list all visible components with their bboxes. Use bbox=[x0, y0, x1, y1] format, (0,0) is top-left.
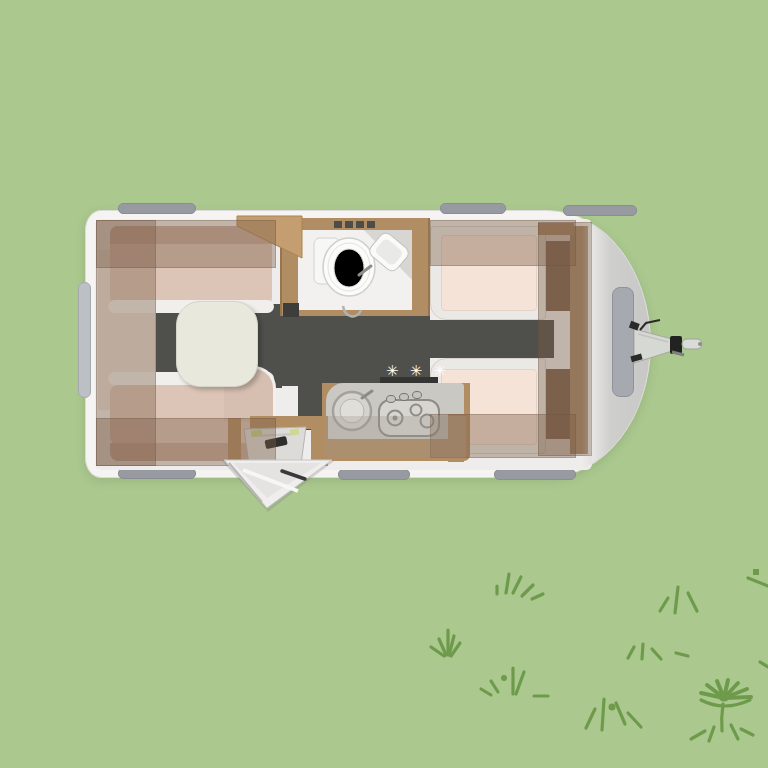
hob-burner-marker: ✳ ✳ ✳ bbox=[386, 362, 449, 380]
grass-dash bbox=[676, 653, 688, 656]
grass-dash bbox=[748, 569, 768, 586]
kitchen-front-ghost bbox=[326, 416, 466, 458]
grass-tuft bbox=[660, 587, 697, 613]
window-tab-top-1 bbox=[118, 203, 196, 214]
grass-tuft bbox=[431, 630, 460, 656]
grass-dash bbox=[760, 662, 768, 667]
grass-tuft bbox=[628, 644, 661, 659]
dinette-table bbox=[176, 301, 258, 387]
overhead-locker-dinette-bottom bbox=[96, 418, 276, 466]
caravan-floor-plan-scene: ✳ ✳ ✳ bbox=[0, 0, 768, 768]
window-tab-top-2 bbox=[440, 203, 506, 214]
grass-tuft bbox=[481, 668, 548, 696]
rear-window-tab bbox=[78, 282, 91, 398]
front-curve-shading bbox=[545, 211, 650, 477]
window-tab-bottom-2 bbox=[338, 469, 410, 480]
daisy-flower bbox=[691, 680, 753, 741]
floor-between-beds bbox=[430, 320, 554, 358]
gas-locker-lid bbox=[612, 287, 634, 397]
grass-tuft bbox=[497, 574, 543, 599]
grass-tuft bbox=[586, 699, 641, 730]
bathroom-floor bbox=[298, 230, 412, 310]
window-tab-top-3 bbox=[563, 205, 637, 216]
overhead-locker-dinette-top bbox=[96, 220, 276, 268]
